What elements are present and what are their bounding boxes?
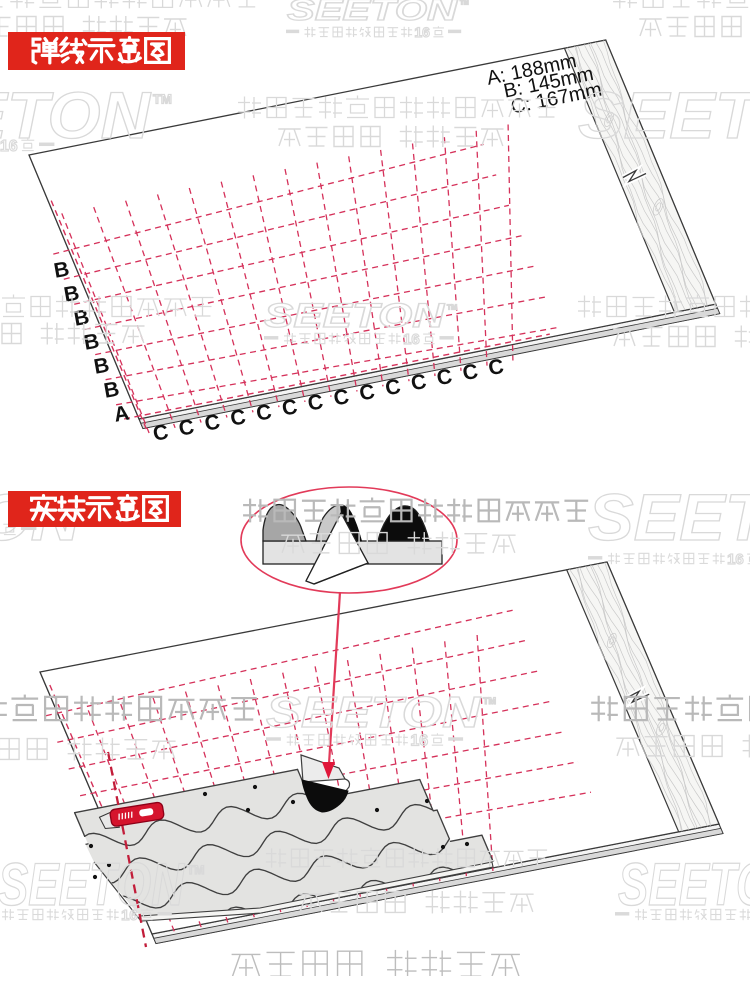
svg-text:TM: TM	[153, 92, 172, 107]
svg-text:SEETON: SEETON	[0, 851, 185, 918]
svg-text:SEETON: SEETON	[287, 0, 459, 27]
svg-text:SEETON: SEETON	[588, 480, 750, 554]
svg-text:16: 16	[410, 732, 428, 749]
svg-text:TM: TM	[187, 863, 204, 877]
svg-text:16: 16	[121, 907, 138, 924]
svg-text:SEETON: SEETON	[618, 851, 750, 918]
svg-text:TM: TM	[447, 304, 457, 311]
svg-text:SEETON: SEETON	[0, 78, 151, 152]
svg-text:16: 16	[727, 551, 744, 568]
svg-text:SEETON: SEETON	[578, 78, 750, 152]
svg-text:16: 16	[414, 24, 430, 40]
svg-text:SEETON: SEETON	[264, 297, 446, 335]
svg-text:16: 16	[0, 138, 18, 155]
svg-text:TM: TM	[483, 696, 496, 706]
svg-text:16: 16	[403, 331, 420, 348]
svg-text:SEETON: SEETON	[266, 688, 481, 737]
svg-text:TM: TM	[460, 0, 469, 6]
